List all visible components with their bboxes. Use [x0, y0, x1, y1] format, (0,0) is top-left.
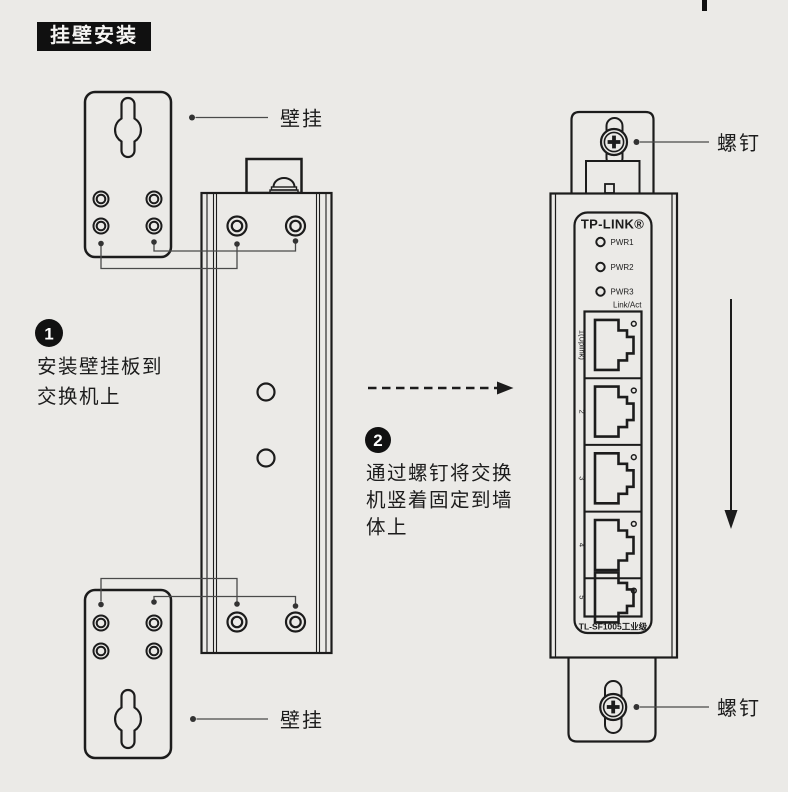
step-1-line-2: 交换机上 — [37, 386, 121, 408]
switch-body — [202, 193, 332, 653]
step-1-number: 1 — [44, 325, 53, 344]
top-tab — [586, 161, 640, 194]
screw-icon — [601, 129, 627, 155]
port-label-1: 1(Uplink) — [577, 330, 586, 361]
step-2-line-2: 机竖着固定到墙 — [366, 490, 513, 512]
port-label-4: 4 — [577, 543, 586, 547]
led-label-pwr1: PWR1 — [611, 238, 635, 247]
label-screw-top: 螺钉 — [717, 132, 761, 155]
leader-screw-bottom: 螺钉 — [634, 697, 762, 720]
label-wall-plate-bottom: 壁挂 — [280, 709, 324, 732]
port-label-2: 2 — [577, 410, 586, 414]
page: 挂壁安装 — [0, 0, 788, 792]
screw-icon — [600, 694, 626, 720]
step-2: 2 通过螺钉将交换 机竖着固定到墙 体上 — [365, 427, 513, 539]
step-2-line-1: 通过螺钉将交换 — [366, 463, 513, 485]
switch-front-view: TP-LINK® PWR1 PWR2 PWR3 Link/Act — [551, 194, 678, 658]
port-label-5: 5 — [577, 595, 586, 599]
down-arrow — [725, 299, 738, 529]
arrow-head-icon — [497, 382, 514, 395]
step-1: 1 安装壁挂板到 交换机上 — [35, 319, 163, 408]
wall-bracket-top — [85, 92, 171, 257]
diagram: 壁挂 壁挂 1 安装壁挂板到 交换机上 2 通过螺钉将交换 机竖着固定到墙 体上 — [0, 0, 788, 792]
leader-wall-plate-top: 壁挂 — [189, 108, 324, 131]
link-act-label: Link/Act — [613, 301, 642, 310]
brand-logo: TP-LINK® — [581, 217, 644, 232]
step-2-line-3: 体上 — [366, 517, 408, 539]
wall-plate-behind-bottom — [569, 650, 656, 742]
port-label-3: 3 — [577, 476, 586, 480]
top-tab — [247, 159, 302, 193]
wall-bracket-bottom — [85, 590, 171, 758]
step-1-line-1: 安装壁挂板到 — [37, 356, 163, 378]
keyhole-slot-icon — [115, 690, 141, 748]
led-label-pwr3: PWR3 — [611, 288, 635, 297]
led-label-pwr2: PWR2 — [611, 263, 635, 272]
label-screw-bottom: 螺钉 — [717, 697, 761, 720]
label-wall-plate-top: 壁挂 — [280, 108, 324, 131]
wall-plate-behind-top — [572, 112, 654, 205]
bracket-screw-holes — [94, 192, 162, 234]
leader-wall-plate-bottom: 壁挂 — [190, 709, 324, 732]
step-arrow — [368, 382, 514, 395]
step-2-number: 2 — [373, 431, 382, 450]
model-label: TL-SF1005工业级 — [579, 622, 648, 632]
arrow-head-icon — [725, 510, 738, 529]
keyhole-slot-icon — [115, 98, 141, 157]
bracket-screw-holes — [94, 616, 162, 659]
grommet-icon — [270, 178, 298, 193]
